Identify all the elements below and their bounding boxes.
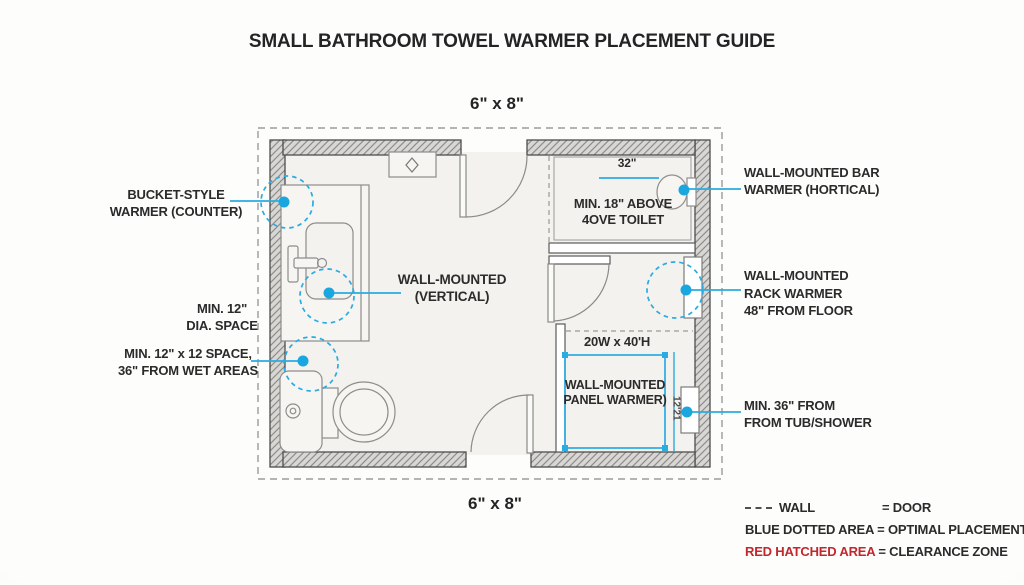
legend-red-value: = CLEARANCE ZONE: [878, 544, 1007, 559]
callout-line: WALL-MOUNTED: [744, 268, 848, 283]
callout-rack-warmer: WALL-MOUNTED RACK WARMER 48" FROM FLOOR: [744, 267, 904, 320]
callout-line: RACK WARMER: [744, 286, 842, 301]
callout-line: FROM TUB/SHOWER: [744, 415, 872, 430]
page-title: SMALL BATHROOM TOWEL WARMER PLACEMENT GU…: [0, 31, 1024, 53]
callout-line: MIN. 12": [197, 301, 247, 316]
room-dimension-bottom: 6" x 8": [435, 494, 555, 514]
note-line: 4OVE TOILET: [582, 212, 664, 227]
legend-blue-label: BLUE DOTTED AREA: [745, 522, 874, 537]
callout-12x12-space: MIN. 12" x 12 SPACE, 36" FROM WET AREAS: [113, 346, 263, 379]
callout-line: WARMER (HORTICAL): [744, 182, 879, 197]
legend-blue-value: = OPTIMAL PLACEMENT: [877, 522, 1024, 537]
legend-red-label: RED HATCHED AREA: [745, 544, 875, 559]
callout-line: 48" FROM FLOOR: [744, 303, 853, 318]
callout-tub-clearance: MIN. 36" FROM FROM TUB/SHOWER: [744, 398, 904, 431]
callout-line: BUCKET-STYLE: [127, 187, 224, 202]
note-line: MIN. 18" ABOVE: [574, 196, 672, 211]
callout-line: 36" FROM WET AREAS: [118, 363, 258, 378]
callout-dia-space: MIN. 12" DIA. SPACE: [147, 301, 297, 334]
panel-warmer-dimension: 20W x 40'H: [557, 334, 677, 351]
vertical-warmer-label: WALL-MOUNTED (VERTICAL): [382, 272, 522, 305]
callout-line: WARMER (COUNTER): [110, 204, 243, 219]
callout-line: MIN. 12" x 12 SPACE,: [124, 346, 252, 361]
interior-door-leaf: [548, 264, 554, 322]
room-dimension-top: 6" x 8": [437, 94, 557, 114]
callout-line: MIN. 36" FROM: [744, 398, 835, 413]
wall-dash-symbol: [745, 507, 772, 509]
legend-row-wall-door: WALL = DOOR: [745, 500, 1024, 517]
panel-side-dimension: 12'21: [667, 392, 684, 424]
note-line: WALL-MOUNTED: [398, 272, 507, 287]
legend-door-label: = DOOR: [882, 500, 931, 517]
callout-line: WALL-MOUNTED BAR: [744, 165, 879, 180]
panel-warmer-label: WALL-MOUNTED PANEL WARMER): [560, 378, 670, 407]
note-line: (VERTICAL): [415, 289, 490, 304]
callout-bucket-warmer: BUCKET-STYLE WARMER (COUNTER): [101, 187, 251, 220]
legend-wall-label: WALL: [779, 500, 815, 515]
toilet-room-dimension: 32": [597, 155, 657, 172]
toilet-bowl: [333, 382, 395, 442]
callout-bar-warmer: WALL-MOUNTED BAR WARMER (HORTICAL): [744, 165, 904, 198]
legend-row-red: RED HATCHED AREA = CLEARANCE ZONE: [745, 544, 1024, 561]
top-door-leaf: [460, 155, 466, 217]
bottom-door-leaf: [527, 395, 533, 453]
infographic-canvas: SMALL BATHROOM TOWEL WARMER PLACEMENT GU…: [0, 0, 1024, 585]
wall-cabinet: [389, 152, 436, 177]
toilet-room-note: MIN. 18" ABOVE 4OVE TOILET: [553, 196, 693, 227]
legend-row-blue: BLUE DOTTED AREA = OPTIMAL PLACEMENT: [745, 522, 1024, 539]
faucet-spout: [294, 258, 318, 268]
note-line: PANEL WARMER): [563, 393, 666, 407]
note-line: WALL-MOUNTED: [565, 378, 665, 392]
callout-line: DIA. SPACE: [186, 318, 257, 333]
